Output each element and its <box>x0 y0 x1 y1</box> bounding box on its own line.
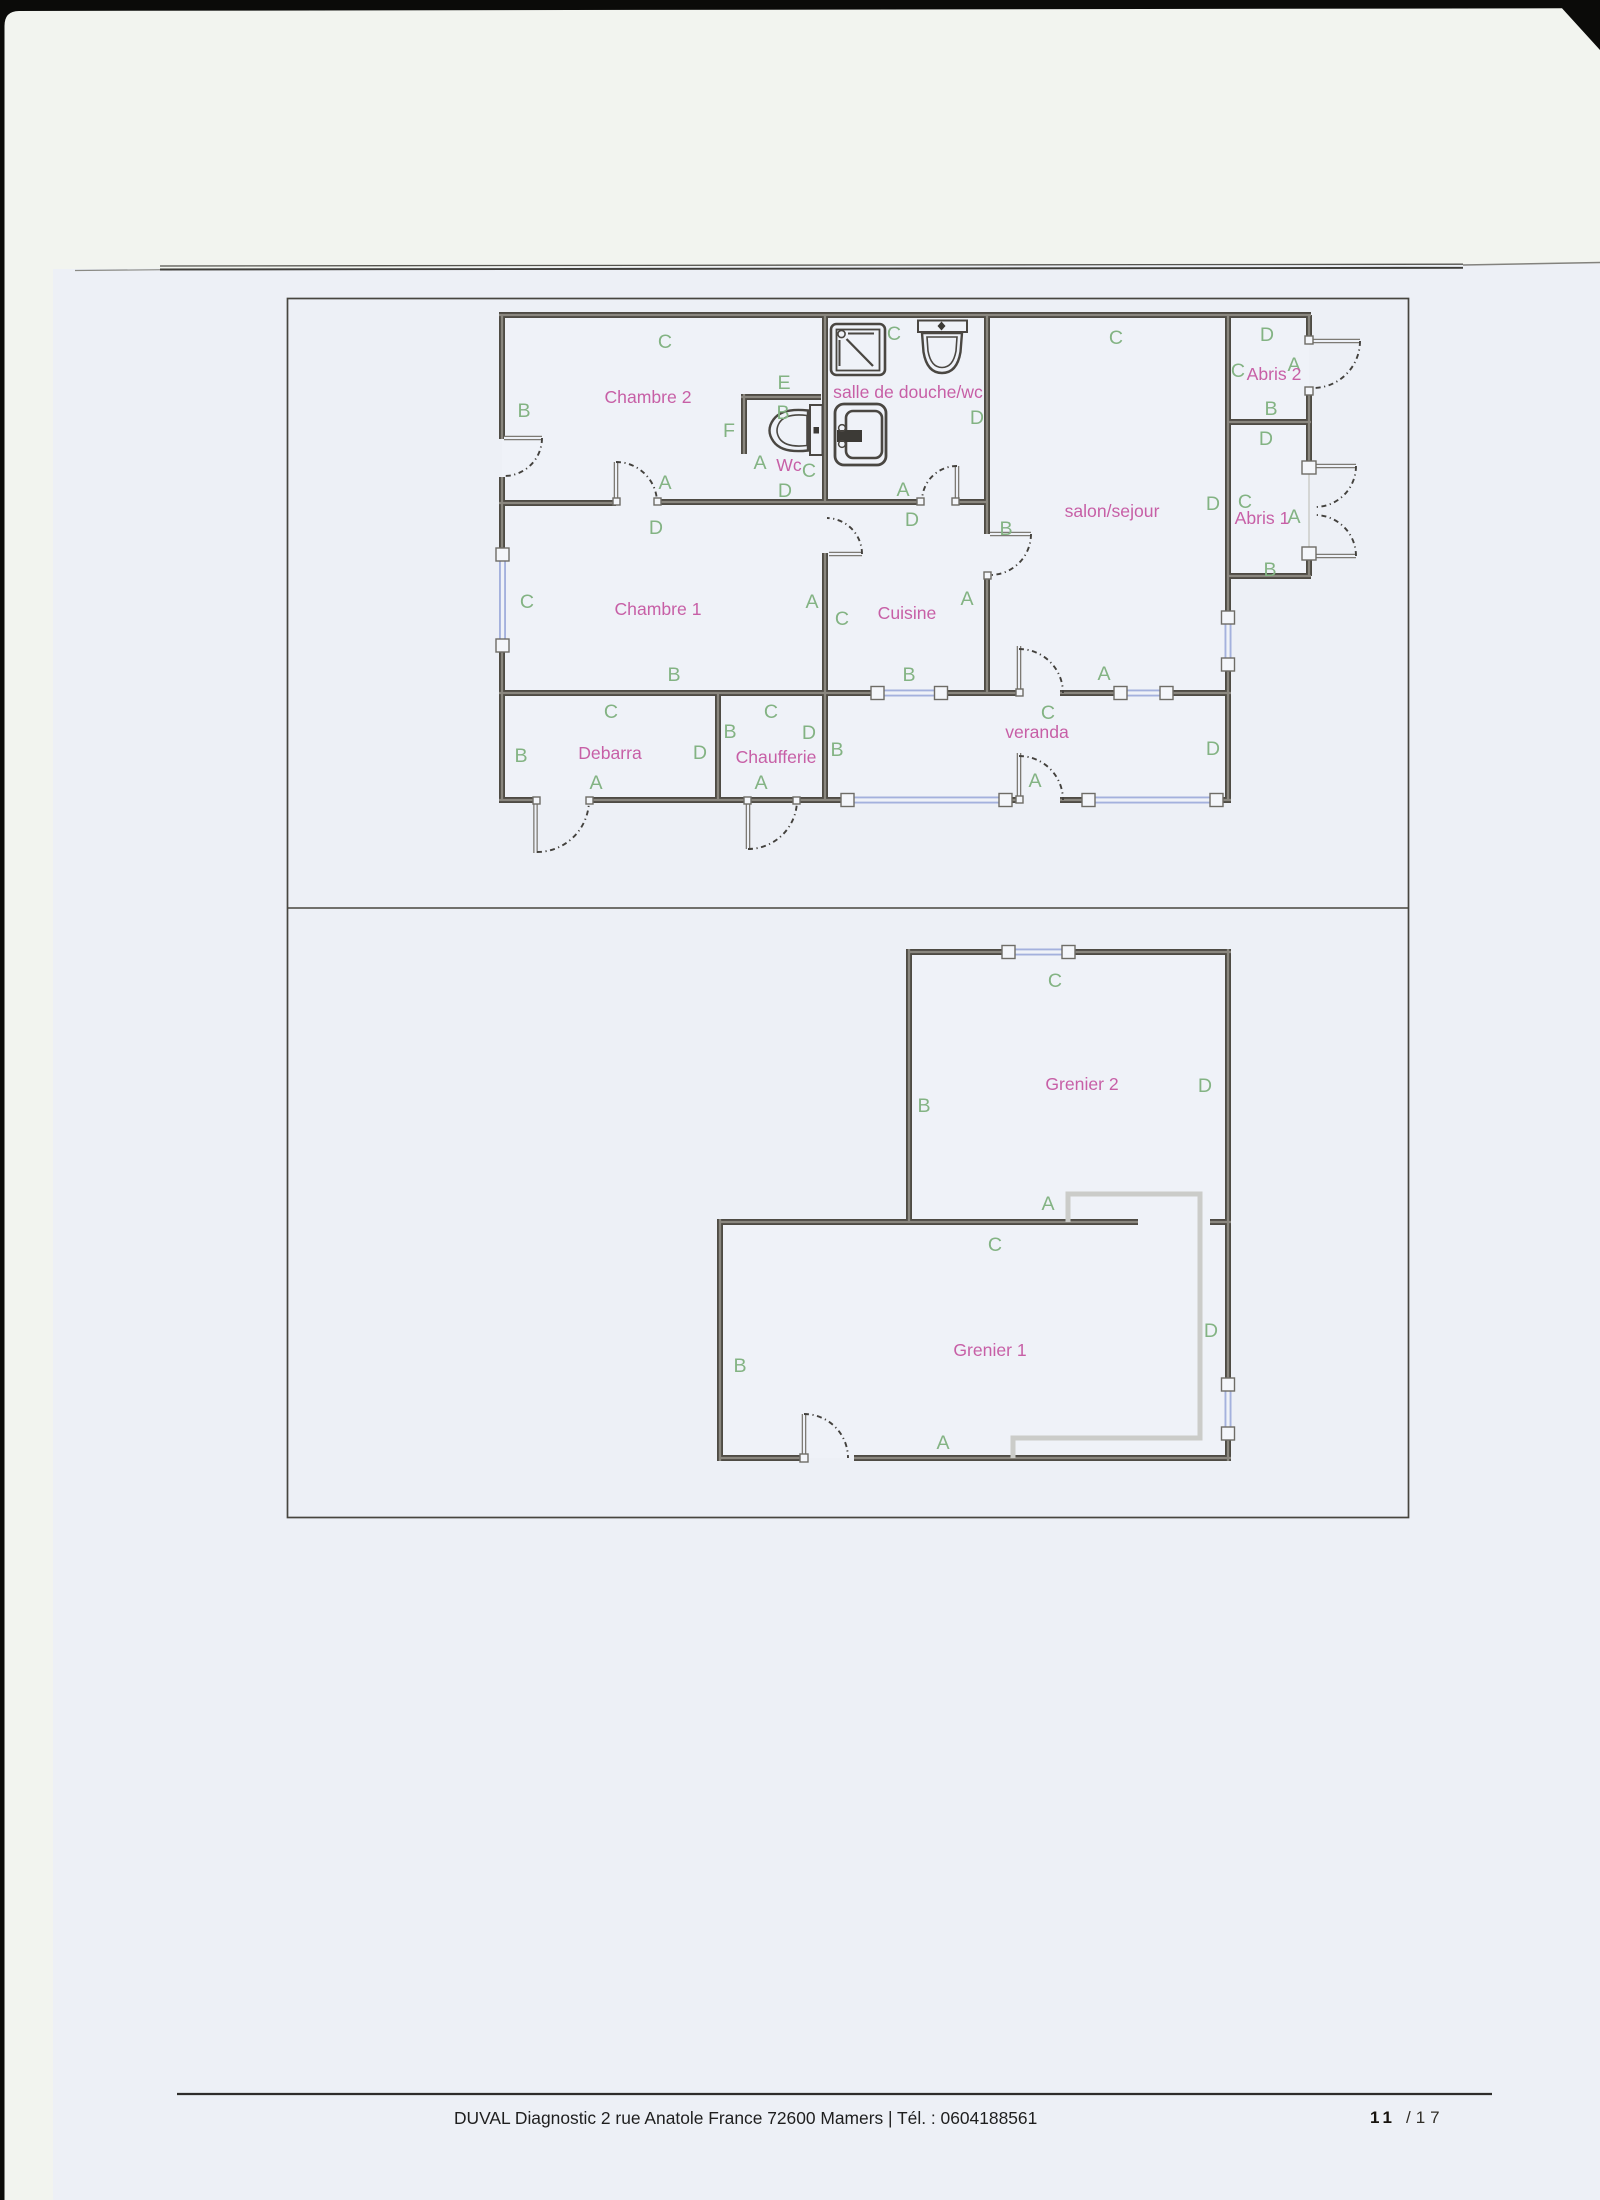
svg-text:Chaufferie: Chaufferie <box>736 747 817 767</box>
svg-text:D: D <box>778 480 792 502</box>
svg-text:F: F <box>723 420 735 442</box>
svg-text:Debarra: Debarra <box>578 743 642 763</box>
svg-text:B: B <box>902 664 915 686</box>
svg-text:Cuisine: Cuisine <box>878 603 937 623</box>
svg-text:B: B <box>917 1095 930 1117</box>
svg-text:A: A <box>1097 663 1111 685</box>
svg-text:Chambre 1: Chambre 1 <box>614 599 701 619</box>
svg-text:D: D <box>970 407 984 429</box>
svg-text:/17: /17 <box>1406 2108 1445 2127</box>
svg-text:A: A <box>1028 770 1042 792</box>
svg-text:B: B <box>723 721 736 743</box>
svg-text:11: 11 <box>1370 2108 1396 2127</box>
svg-text:D: D <box>1204 1320 1218 1342</box>
svg-text:A: A <box>589 772 603 794</box>
svg-text:B: B <box>667 664 680 686</box>
svg-text:Abris 1: Abris 1 <box>1235 508 1290 528</box>
svg-text:C: C <box>988 1234 1002 1256</box>
svg-text:salle de douche/wc: salle de douche/wc <box>833 382 983 402</box>
svg-text:D: D <box>1206 738 1220 760</box>
svg-text:Grenier 1: Grenier 1 <box>953 1340 1026 1360</box>
svg-text:B: B <box>733 1355 746 1377</box>
svg-text:A: A <box>805 591 819 613</box>
svg-text:C: C <box>1109 327 1123 349</box>
svg-text:C: C <box>604 701 618 723</box>
svg-text:C: C <box>1048 970 1062 992</box>
svg-text:B: B <box>1263 559 1276 581</box>
svg-text:A: A <box>936 1432 950 1454</box>
svg-text:D: D <box>1206 493 1220 515</box>
svg-text:C: C <box>658 331 672 353</box>
svg-text:B: B <box>514 745 527 767</box>
svg-text:A: A <box>754 772 768 794</box>
svg-text:A: A <box>1041 1193 1055 1215</box>
svg-text:Abris 2: Abris 2 <box>1247 364 1302 384</box>
svg-text:veranda: veranda <box>1005 722 1069 742</box>
svg-text:B: B <box>517 400 530 422</box>
svg-text:B: B <box>776 402 789 424</box>
svg-text:C: C <box>1041 702 1055 724</box>
svg-text:D: D <box>1260 324 1274 346</box>
svg-text:Chambre 2: Chambre 2 <box>604 387 691 407</box>
svg-text:D: D <box>649 517 663 539</box>
svg-text:D: D <box>1198 1075 1212 1097</box>
svg-text:C: C <box>835 608 849 630</box>
svg-text:C: C <box>764 701 778 723</box>
svg-text:A: A <box>1287 506 1301 528</box>
svg-text:A: A <box>896 479 910 501</box>
svg-text:C: C <box>520 591 534 613</box>
svg-text:salon/sejour: salon/sejour <box>1065 501 1160 521</box>
svg-text:A: A <box>753 452 767 474</box>
svg-text:B: B <box>830 739 843 761</box>
svg-text:DUVAL Diagnostic 2 rue Anatole: DUVAL Diagnostic 2 rue Anatole France 72… <box>454 2108 1037 2128</box>
svg-text:B: B <box>1264 398 1277 420</box>
svg-text:C: C <box>1231 360 1245 382</box>
svg-text:A: A <box>658 472 672 494</box>
svg-text:D: D <box>693 742 707 764</box>
svg-text:C: C <box>887 323 901 345</box>
svg-text:Grenier 2: Grenier 2 <box>1045 1074 1118 1094</box>
svg-text:A: A <box>960 588 974 610</box>
svg-text:D: D <box>802 722 816 744</box>
svg-text:D: D <box>1259 428 1273 450</box>
svg-text:D: D <box>905 509 919 531</box>
svg-text:E: E <box>777 372 790 394</box>
svg-text:Wc: Wc <box>776 455 802 475</box>
svg-text:B: B <box>999 518 1012 540</box>
svg-text:C: C <box>802 460 816 482</box>
